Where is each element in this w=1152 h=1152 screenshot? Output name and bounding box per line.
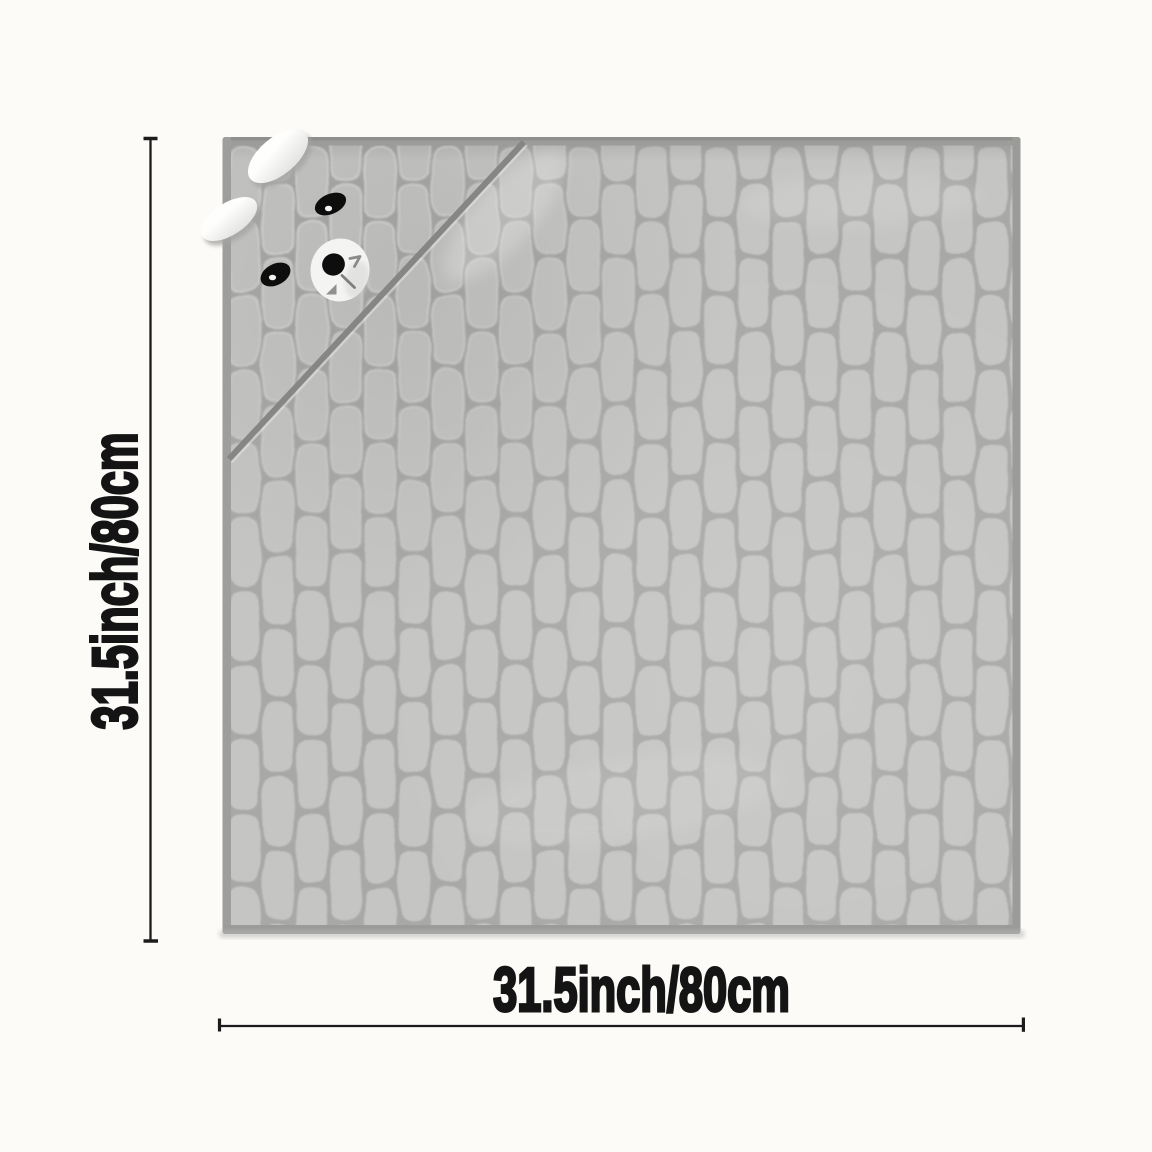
svg-text:31.5inch/80cm: 31.5inch/80cm [493, 957, 790, 1025]
svg-text:31.5inch/80cm: 31.5inch/80cm [81, 432, 151, 729]
